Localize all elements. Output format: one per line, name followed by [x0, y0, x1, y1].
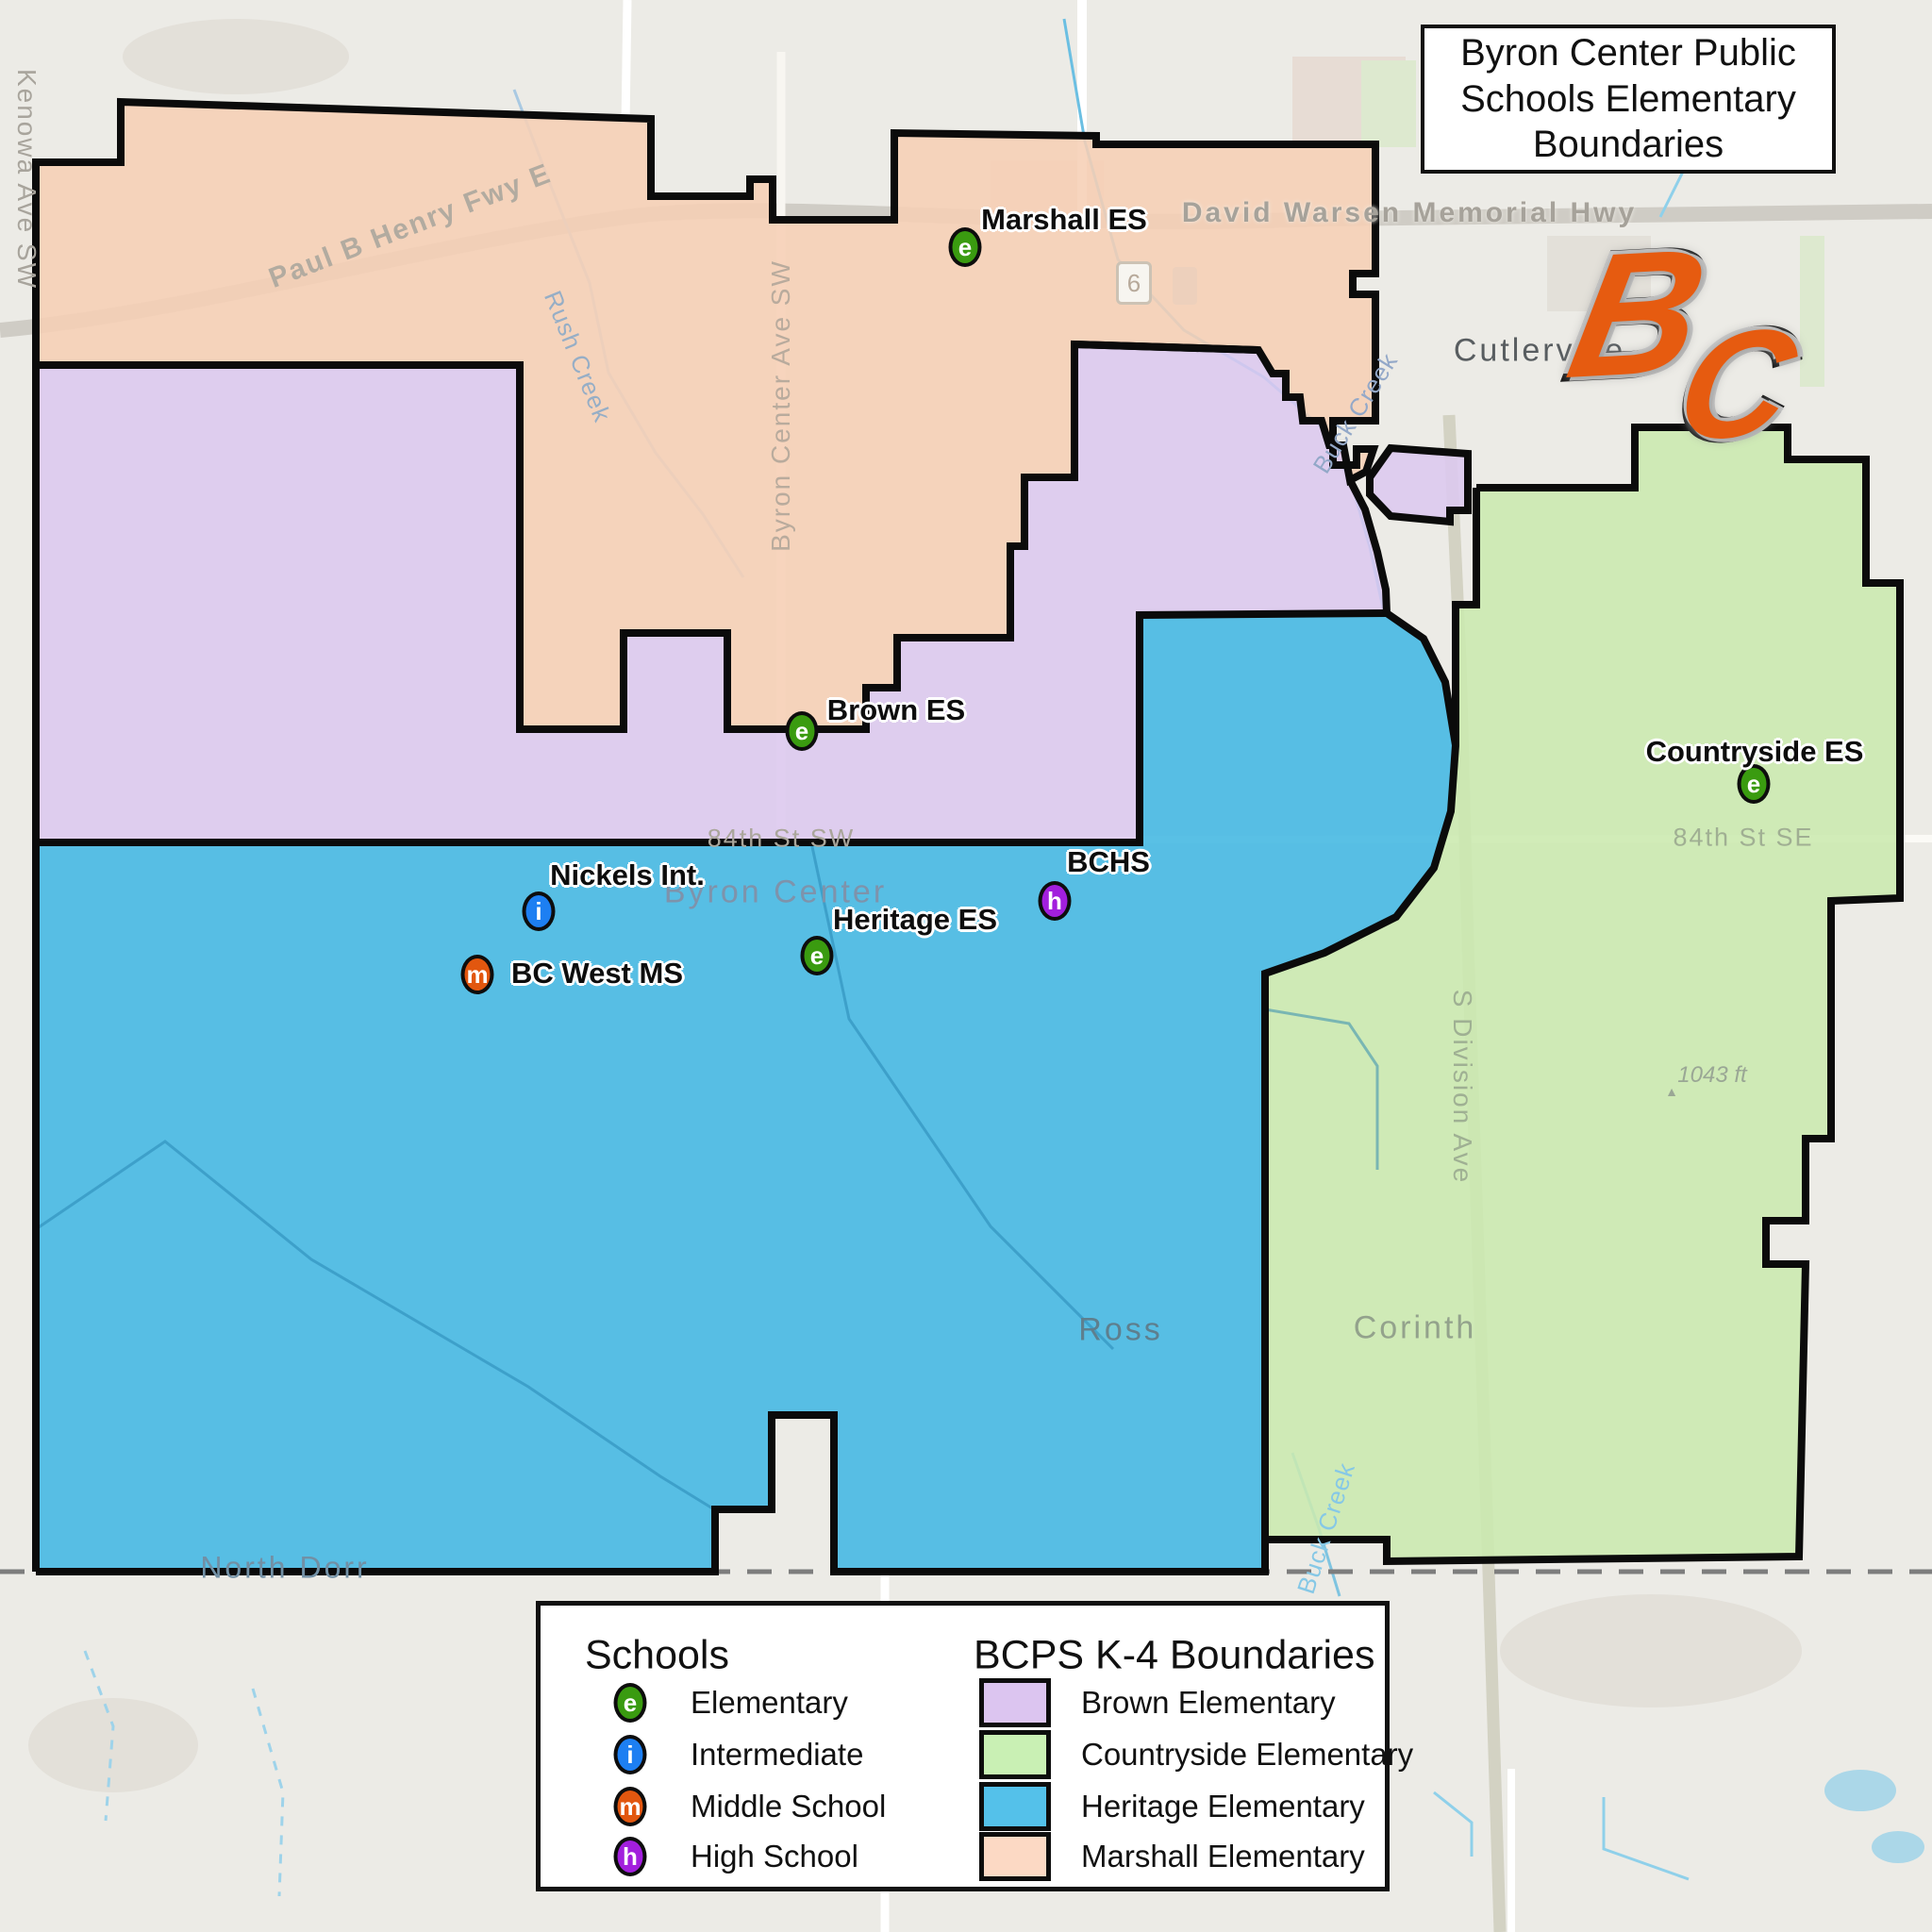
- school-label-nickels-int: Nickels Int.: [550, 858, 705, 892]
- legend-marshall-swatch: [979, 1832, 1051, 1881]
- legend-middle-school-label: Middle School: [691, 1789, 886, 1824]
- legend-schools-heading: Schools: [585, 1633, 729, 1679]
- legend-marshall-label: Marshall Elementary: [1081, 1839, 1365, 1874]
- school-label-heritage-es: Heritage ES: [833, 903, 997, 937]
- road-label-84th-st-sw: 84th St SW: [708, 824, 856, 854]
- road-label-s-division: S Division Ave: [1447, 990, 1477, 1184]
- legend-heritage-label: Heritage Elementary: [1081, 1789, 1365, 1824]
- school-label-countryside-es: Countryside ES: [1646, 735, 1864, 769]
- road-label-byron-center-ave: Byron Center Ave SW: [766, 259, 796, 552]
- town-label-ross: Ross: [1078, 1312, 1162, 1349]
- legend-countryside-swatch: [979, 1730, 1051, 1779]
- road-label-david-warsen: David Warsen Memorial Hwy: [1182, 197, 1637, 229]
- legend-boundaries-heading: BCPS K-4 Boundaries: [974, 1633, 1374, 1679]
- route-6-shield-icon: 6: [1116, 261, 1152, 305]
- school-marker-nickels-int-icon: i: [523, 891, 556, 931]
- legend-brown-label: Brown Elementary: [1081, 1685, 1336, 1721]
- school-marker-countryside-es-icon: e: [1738, 764, 1771, 804]
- elevation-label: 1043 ft: [1677, 1062, 1746, 1089]
- legend-middle-school-marker-icon: m: [614, 1787, 647, 1826]
- legend-elementary-label: Elementary: [691, 1685, 848, 1721]
- school-marker-bc-west-ms-icon: m: [461, 955, 494, 994]
- school-marker-heritage-es-icon: e: [801, 936, 834, 975]
- school-marker-brown-es-icon: e: [786, 711, 819, 751]
- legend-elementary-marker-icon: e: [614, 1683, 647, 1723]
- town-label-cutlerville: Cutlerville: [1454, 333, 1625, 370]
- legend-intermediate-marker-icon: i: [614, 1735, 647, 1774]
- road-label-kenowa-ave: Kenowa Ave SW: [11, 69, 42, 290]
- school-label-marshall-es: Marshall ES: [981, 203, 1147, 237]
- school-marker-bchs-icon: h: [1039, 881, 1072, 921]
- town-label-corinth: Corinth: [1354, 1310, 1477, 1347]
- road-label-84th-st-se: 84th St SE: [1673, 824, 1813, 853]
- legend-brown-swatch: [979, 1678, 1051, 1727]
- map-title: Byron Center Public Schools Elementary B…: [1424, 30, 1832, 168]
- map-title-box: Byron Center Public Schools Elementary B…: [1421, 25, 1836, 174]
- school-label-bc-west-ms: BC West MS: [511, 957, 683, 991]
- map-poster: Paul B Henry Fwy E David Warsen Memorial…: [0, 0, 1932, 1932]
- school-marker-marshall-es-icon: e: [949, 227, 982, 267]
- legend-intermediate-label: Intermediate: [691, 1737, 863, 1773]
- school-label-bchs: BCHS: [1067, 845, 1150, 879]
- legend-countryside-label: Countryside Elementary: [1081, 1737, 1413, 1773]
- town-label-north-dorr: North Dorr: [200, 1551, 369, 1586]
- legend-high-school-marker-icon: h: [614, 1837, 647, 1876]
- elevation-triangle-icon: ▲: [1665, 1084, 1678, 1099]
- legend-high-school-label: High School: [691, 1839, 858, 1874]
- school-label-brown-es: Brown ES: [827, 693, 965, 727]
- legend-heritage-swatch: [979, 1782, 1051, 1831]
